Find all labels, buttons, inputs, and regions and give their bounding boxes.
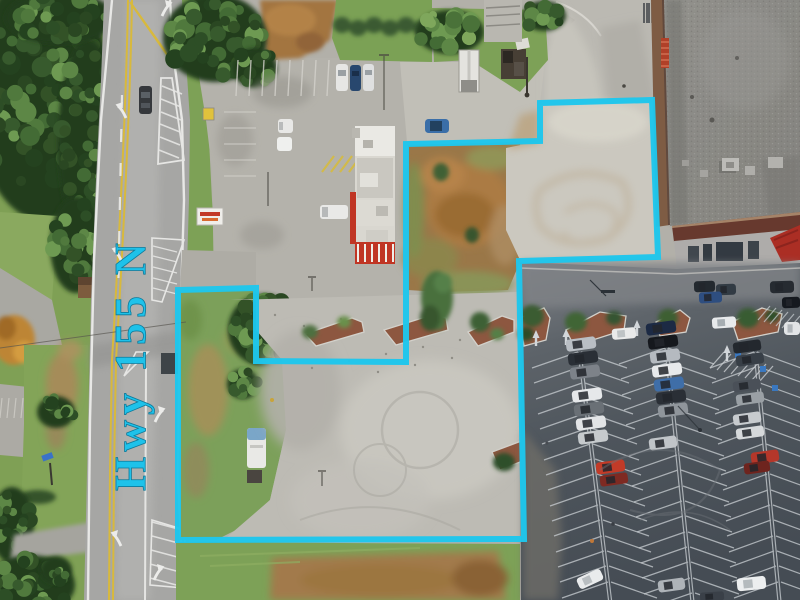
- svg-text:Hwy 155 N: Hwy 155 N: [106, 238, 155, 491]
